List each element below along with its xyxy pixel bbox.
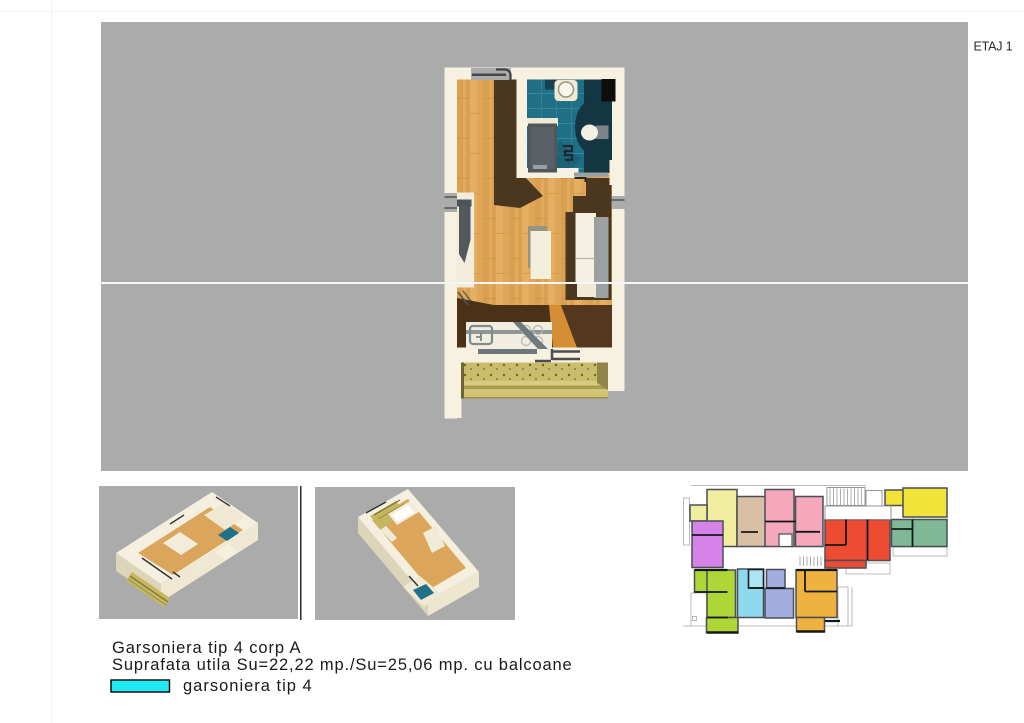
- svg-text:garsoniera tip 4: garsoniera tip 4: [183, 677, 313, 695]
- svg-text:Garsoniera tip 4 corp A: Garsoniera tip 4 corp A: [112, 639, 301, 657]
- svg-text:Suprafata utila Su=22,22 mp./S: Suprafata utila Su=22,22 mp./Su=25,06 mp…: [112, 656, 573, 674]
- svg-text:ETAJ 1: ETAJ 1: [974, 40, 1013, 54]
